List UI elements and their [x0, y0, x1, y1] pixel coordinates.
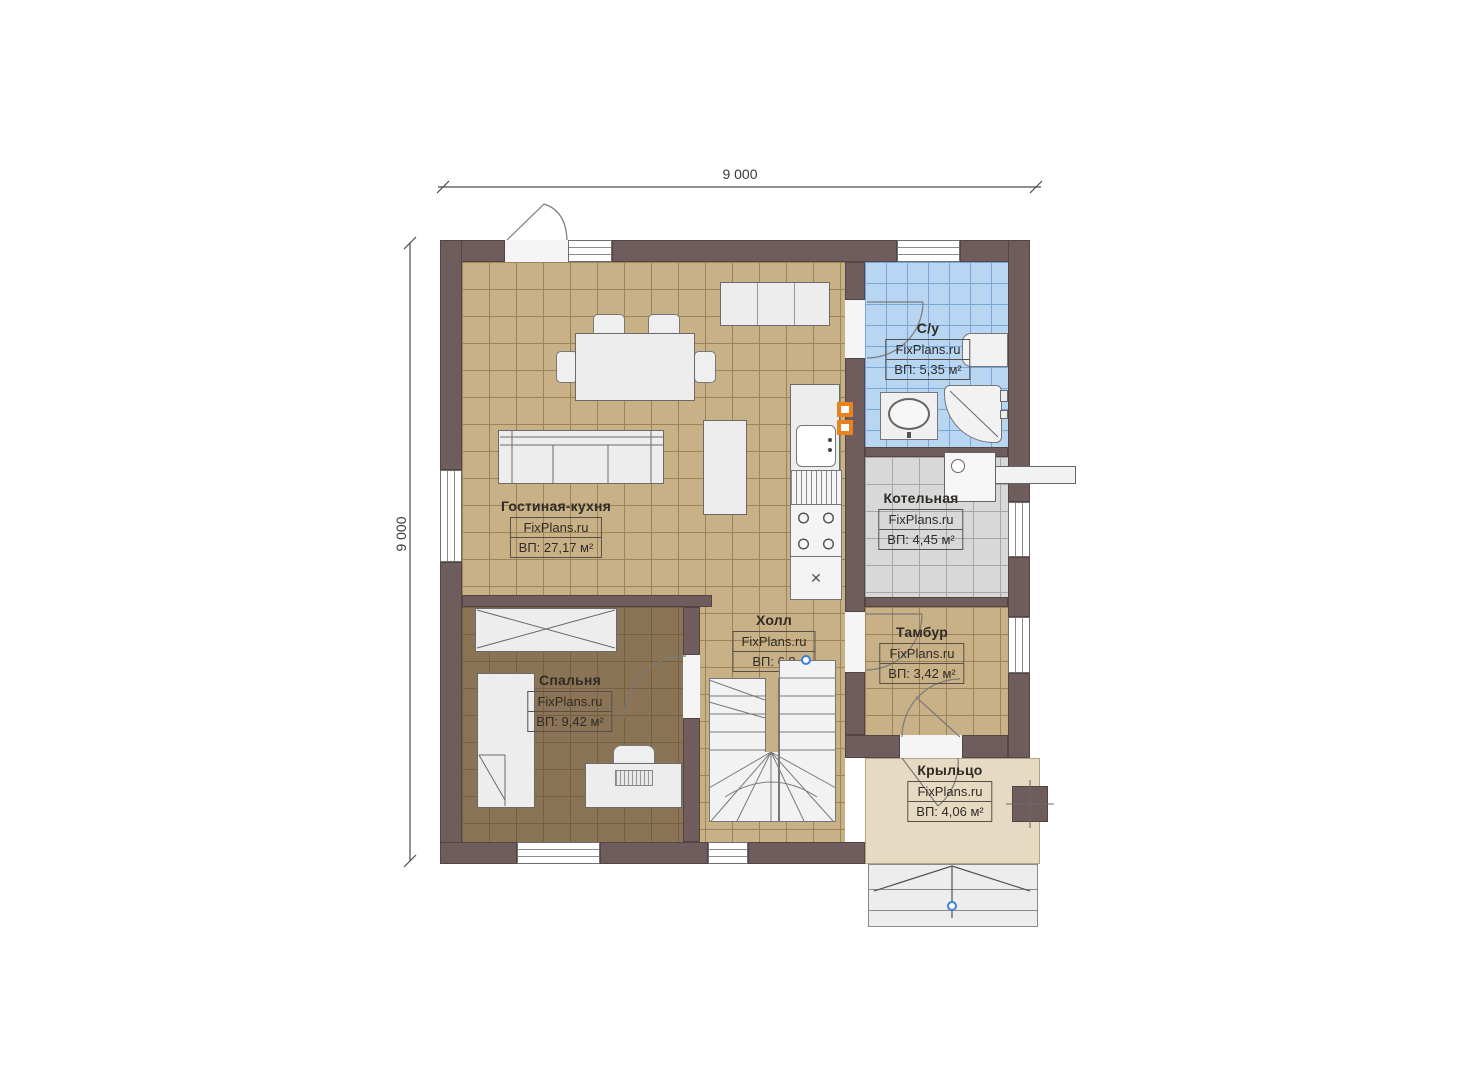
- room-area: ВП: 3,42 м²: [880, 663, 963, 683]
- kitchen-counter-top: [720, 282, 830, 326]
- wall-right-3: [1008, 673, 1030, 758]
- hall-window: [708, 842, 748, 864]
- wall-kitchen-bath-2: [845, 358, 865, 612]
- room-name: Крыльцо: [907, 762, 992, 778]
- terrace-sidelight-window: [568, 240, 612, 262]
- toilet: [880, 392, 938, 440]
- wall-kitchen-bath-1: [845, 262, 865, 300]
- wall-bedroom-top: [462, 595, 712, 607]
- room-label-tambour: Тамбур FixPlans.ru ВП: 3,42 м²: [879, 624, 964, 684]
- room-label-bathroom: С/у FixPlans.ru ВП: 5,35 м²: [885, 320, 970, 380]
- terrace-door-arc: [507, 204, 567, 240]
- room-name: С/у: [885, 320, 970, 336]
- room-area: ВП: 5,35 м²: [886, 359, 969, 379]
- vent-icon: [837, 402, 853, 417]
- entry-door-opening: [900, 735, 962, 758]
- watermark-box: FixPlans.ru ВП: 4,45 м²: [878, 509, 963, 550]
- watermark-text: FixPlans.ru: [886, 340, 969, 359]
- fridge: [790, 556, 842, 600]
- watermark-text: FixPlans.ru: [879, 510, 962, 529]
- dimension-label-left: 9 000: [393, 489, 409, 579]
- dimension-label-top: 9 000: [680, 166, 800, 182]
- boiler-pipe: [996, 466, 1076, 484]
- stairs-right-flight: [779, 660, 836, 822]
- room-name: Гостиная-кухня: [501, 498, 611, 514]
- selection-marker[interactable]: [801, 655, 811, 665]
- wall-bedroom-right-1: [683, 607, 700, 655]
- toilet-bowl: [888, 398, 930, 430]
- bedroom-door-opening: [683, 655, 700, 718]
- room-name: Холл: [732, 612, 815, 628]
- wall-tambour-porch-1: [845, 735, 900, 758]
- wall-bottom-3: [748, 842, 865, 864]
- room-area: ВП: 9,42 м²: [528, 711, 611, 731]
- floor-plan-canvas: 9 000 9 000: [0, 0, 1474, 1080]
- selection-marker[interactable]: [947, 901, 957, 911]
- shower-fixture: [1000, 390, 1008, 402]
- shower-fixture: [1000, 410, 1008, 419]
- room-label-bedroom: Спальня FixPlans.ru ВП: 9,42 м²: [527, 672, 612, 732]
- watermark-text: FixPlans.ru: [880, 644, 963, 663]
- wall-bottom-2: [600, 842, 708, 864]
- keyboard: [615, 770, 653, 786]
- watermark-box: FixPlans.ru ВП: 3,42 м²: [879, 643, 964, 684]
- room-name: Тамбур: [879, 624, 964, 640]
- wall-top-2: [612, 240, 897, 262]
- wall-bottom-1: [440, 842, 517, 864]
- bedroom-window: [517, 842, 600, 864]
- vent-icon: [837, 420, 853, 435]
- boiler-window: [1008, 502, 1030, 557]
- watermark-box: FixPlans.ru ВП: 4,06 м²: [907, 781, 992, 822]
- wardrobe: [475, 608, 617, 652]
- wall-boiler-tambour: [865, 597, 1008, 607]
- watermark-text: FixPlans.ru: [733, 632, 814, 651]
- bathroom-door-opening: [845, 300, 865, 358]
- dining-table: [575, 333, 695, 401]
- room-area: ВП: 27,17 м²: [511, 537, 602, 557]
- room-label-boiler: Котельная FixPlans.ru ВП: 4,45 м²: [878, 490, 963, 550]
- dining-chair-4: [694, 351, 716, 383]
- room-name: Котельная: [878, 490, 963, 506]
- wall-left-2: [440, 562, 462, 864]
- kitchen-counter-right: [790, 384, 840, 598]
- stairs-divider: [765, 678, 779, 752]
- porch-pillar: [1012, 786, 1048, 822]
- watermark-text: FixPlans.ru: [528, 692, 611, 711]
- room-label-living: Гостиная-кухня FixPlans.ru ВП: 27,17 м²: [501, 498, 611, 558]
- wall-tambour-porch-2: [962, 735, 1008, 758]
- kitchen-island: [703, 420, 747, 515]
- watermark-text: FixPlans.ru: [511, 518, 602, 537]
- bathroom-window: [897, 240, 960, 262]
- watermark-text: FixPlans.ru: [908, 782, 991, 801]
- watermark-box: FixPlans.ru ВП: 27,17 м²: [510, 517, 603, 558]
- stove: [790, 504, 842, 558]
- room-area: ВП: 4,45 м²: [879, 529, 962, 549]
- wall-kitchen-bath-3: [845, 672, 865, 735]
- wall-left-1: [440, 240, 462, 470]
- hall-tambour-door-opening: [845, 612, 865, 672]
- wall-right-1: [1008, 240, 1030, 502]
- living-window-left: [440, 470, 462, 562]
- porch-steps: [868, 864, 1038, 927]
- dish-rack: [790, 470, 842, 506]
- room-name: Спальня: [527, 672, 612, 688]
- wall-right-2: [1008, 557, 1030, 617]
- room-area: ВП: 4,06 м²: [908, 801, 991, 821]
- tambour-window: [1008, 617, 1030, 673]
- terrace-door-opening: [505, 240, 568, 262]
- kitchen-sink: [796, 425, 836, 467]
- watermark-box: FixPlans.ru ВП: 9,42 м²: [527, 691, 612, 732]
- sofa: [498, 430, 664, 484]
- watermark-box: FixPlans.ru ВП: 5,35 м²: [885, 339, 970, 380]
- wall-bedroom-right-2: [683, 718, 700, 842]
- room-label-porch: Крыльцо FixPlans.ru ВП: 4,06 м²: [907, 762, 992, 822]
